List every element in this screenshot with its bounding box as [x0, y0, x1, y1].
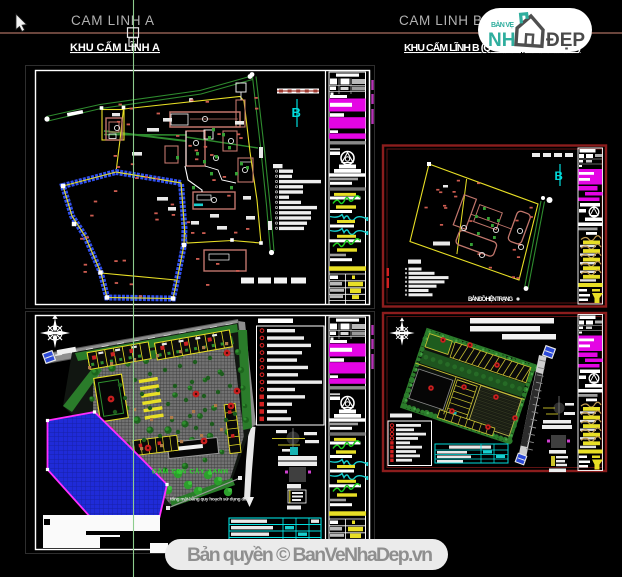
svg-text:Bản quyền © BanVeNhaDep.vn: Bản quyền © BanVeNhaDep.vn: [187, 544, 433, 566]
svg-text:BẢN ĐỒ HIỆN TRẠNG: BẢN ĐỒ HIỆN TRẠNG: [468, 295, 513, 303]
svg-text:CAM LINH B: CAM LINH B: [399, 13, 483, 28]
svg-text:B: B: [555, 171, 563, 183]
svg-text:NH: NH: [488, 30, 515, 51]
svg-text:CAM LINH A: CAM LINH A: [71, 13, 155, 28]
svg-text:B: B: [292, 105, 301, 120]
svg-text:BẢN VẸ: BẢN VẸ: [491, 20, 514, 29]
svg-text:tổng mặt bằng quy hoạch sử dụn: tổng mặt bằng quy hoạch sử dụng đất: [170, 496, 248, 503]
svg-text:ĐẸP: ĐẸP: [546, 30, 585, 51]
svg-text:KHU CẤM LĨNH A: KHU CẤM LĨNH A: [70, 41, 160, 54]
